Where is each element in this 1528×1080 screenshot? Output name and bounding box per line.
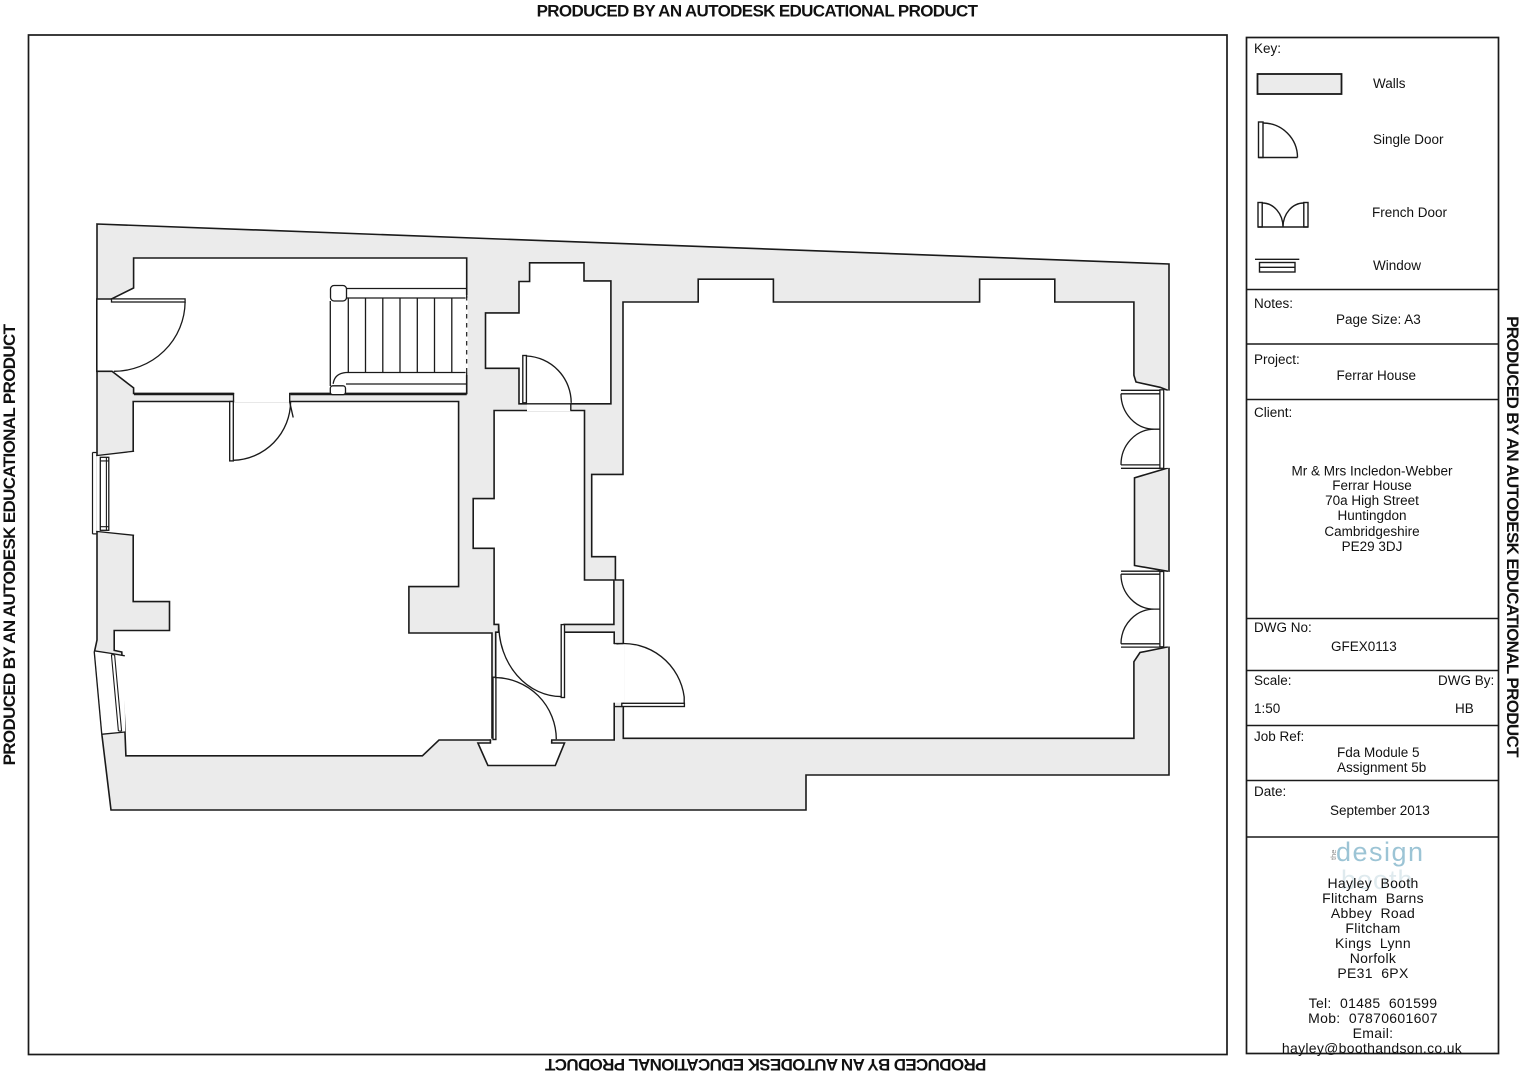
- svg-text:Client:: Client:: [1254, 405, 1292, 420]
- svg-text:Single Door: Single Door: [1373, 132, 1444, 147]
- svg-text:Date:: Date:: [1254, 784, 1286, 799]
- svg-text:Job Ref:: Job Ref:: [1254, 729, 1304, 744]
- svg-text:Project:: Project:: [1254, 352, 1300, 367]
- svg-text:Key:: Key:: [1254, 41, 1281, 56]
- svg-text:Notes:: Notes:: [1254, 296, 1293, 311]
- svg-text:Assignment 5b: Assignment 5b: [1337, 760, 1426, 775]
- svg-text:design: design: [1336, 837, 1425, 867]
- svg-text:PRODUCED BY AN AUTODESK EDUCAT: PRODUCED BY AN AUTODESK EDUCATIONAL PROD…: [0, 323, 19, 765]
- svg-text:Ferrar House: Ferrar House: [1337, 368, 1417, 383]
- svg-text:Mob: 07870601607: Mob: 07870601607: [1308, 1010, 1438, 1026]
- svg-text:PRODUCED BY AN AUTODESK EDUCAT: PRODUCED BY AN AUTODESK EDUCATIONAL PROD…: [544, 1055, 986, 1074]
- svg-text:French Door: French Door: [1372, 205, 1448, 220]
- svg-text:Scale:: Scale:: [1254, 673, 1292, 688]
- svg-text:Norfolk: Norfolk: [1350, 950, 1397, 966]
- svg-text:Abbey Road: Abbey Road: [1331, 905, 1415, 921]
- svg-text:PE29 3DJ: PE29 3DJ: [1342, 539, 1403, 554]
- svg-text:Hayley Booth: Hayley Booth: [1327, 875, 1418, 891]
- svg-text:GFEX0113: GFEX0113: [1331, 639, 1397, 654]
- svg-text:70a High Street: 70a High Street: [1325, 493, 1419, 508]
- svg-text:Fda Module 5: Fda Module 5: [1337, 745, 1420, 760]
- svg-text:Page Size: A3: Page Size: A3: [1336, 312, 1421, 327]
- svg-text:Ferrar House: Ferrar House: [1332, 478, 1412, 493]
- svg-text:Huntingdon: Huntingdon: [1337, 508, 1406, 523]
- svg-text:the: the: [1329, 850, 1338, 860]
- svg-text:DWG By:: DWG By:: [1438, 673, 1494, 688]
- svg-text:September 2013: September 2013: [1330, 803, 1430, 818]
- svg-text:Mr & Mrs Incledon-Webber: Mr & Mrs Incledon-Webber: [1291, 464, 1453, 479]
- svg-text:PE31 6PX: PE31 6PX: [1337, 965, 1409, 981]
- svg-text:Email:: Email:: [1353, 1025, 1394, 1041]
- svg-text:Cambridgeshire: Cambridgeshire: [1324, 524, 1419, 539]
- svg-text:Walls: Walls: [1373, 76, 1406, 91]
- svg-text:hayley@boothandson.co.uk: hayley@boothandson.co.uk: [1282, 1040, 1463, 1056]
- svg-text:Kings Lynn: Kings Lynn: [1335, 935, 1411, 951]
- svg-text:DWG No:: DWG No:: [1254, 620, 1312, 635]
- svg-text:PRODUCED BY AN AUTODESK EDUCAT: PRODUCED BY AN AUTODESK EDUCATIONAL PROD…: [1503, 316, 1522, 758]
- svg-text:Flitcham Barns: Flitcham Barns: [1322, 890, 1424, 906]
- svg-text:Window: Window: [1373, 258, 1421, 273]
- svg-text:Tel: 01485 601599: Tel: 01485 601599: [1309, 995, 1438, 1011]
- svg-text:Flitcham: Flitcham: [1345, 920, 1400, 936]
- svg-text:HB: HB: [1455, 701, 1474, 716]
- svg-text:1:50: 1:50: [1254, 701, 1280, 716]
- svg-text:PRODUCED BY AN AUTODESK EDUCAT: PRODUCED BY AN AUTODESK EDUCATIONAL PROD…: [537, 2, 979, 21]
